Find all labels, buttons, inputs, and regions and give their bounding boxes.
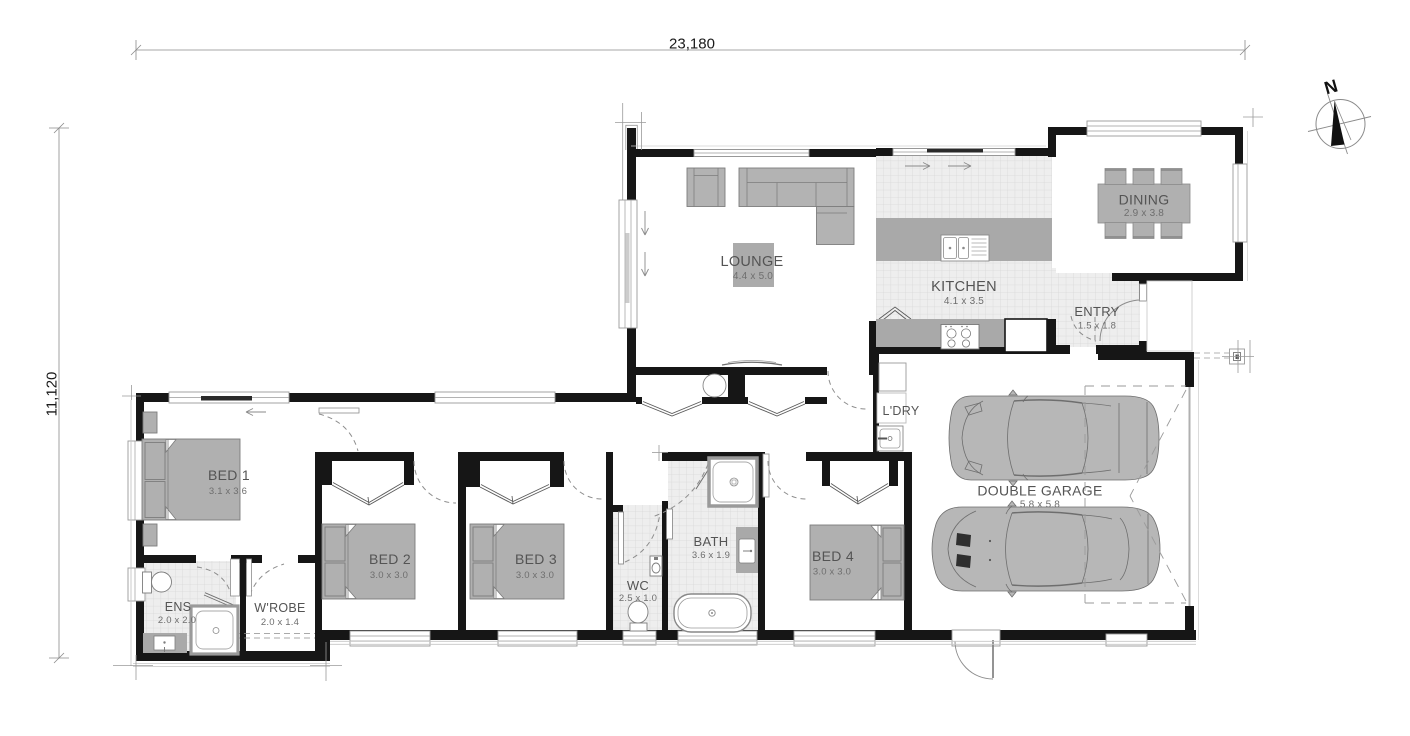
svg-text:23,180: 23,180 bbox=[669, 36, 715, 53]
svg-text:2.9 x 3.8: 2.9 x 3.8 bbox=[1124, 208, 1164, 219]
svg-text:BED 3: BED 3 bbox=[515, 551, 557, 567]
svg-text:BED 4: BED 4 bbox=[812, 548, 854, 564]
svg-text:BED 2: BED 2 bbox=[369, 551, 411, 567]
svg-text:BATH: BATH bbox=[694, 534, 729, 549]
svg-text:4.1 x 3.5: 4.1 x 3.5 bbox=[944, 296, 984, 307]
svg-text:DINING: DINING bbox=[1119, 192, 1170, 208]
svg-text:ENS: ENS bbox=[165, 600, 192, 614]
svg-text:DOUBLE GARAGE: DOUBLE GARAGE bbox=[977, 483, 1102, 499]
svg-text:1.5 x 1.8: 1.5 x 1.8 bbox=[1078, 321, 1116, 332]
svg-text:ENTRY: ENTRY bbox=[1074, 304, 1119, 319]
svg-text:KITCHEN: KITCHEN bbox=[931, 279, 997, 295]
svg-text:3.1 x 3.6: 3.1 x 3.6 bbox=[209, 486, 247, 497]
svg-text:2.0 x 2.0: 2.0 x 2.0 bbox=[158, 615, 196, 626]
svg-text:2.0 x 1.4: 2.0 x 1.4 bbox=[261, 617, 299, 628]
svg-text:3.6 x 1.9: 3.6 x 1.9 bbox=[692, 550, 730, 561]
svg-text:3.0 x 3.0: 3.0 x 3.0 bbox=[370, 570, 408, 581]
svg-text:BED 1: BED 1 bbox=[208, 467, 250, 483]
svg-text:WC: WC bbox=[627, 578, 649, 593]
svg-text:W'ROBE: W'ROBE bbox=[254, 601, 305, 615]
svg-text:L'DRY: L'DRY bbox=[882, 404, 919, 418]
svg-text:3.0 x 3.0: 3.0 x 3.0 bbox=[516, 570, 554, 581]
svg-text:3.0 x 3.0: 3.0 x 3.0 bbox=[813, 567, 851, 578]
svg-text:LOUNGE: LOUNGE bbox=[720, 254, 783, 270]
svg-text:4.4 x 5.0: 4.4 x 5.0 bbox=[733, 271, 773, 282]
svg-text:2.5 x 1.0: 2.5 x 1.0 bbox=[619, 593, 657, 604]
svg-text:11,120: 11,120 bbox=[44, 372, 61, 417]
